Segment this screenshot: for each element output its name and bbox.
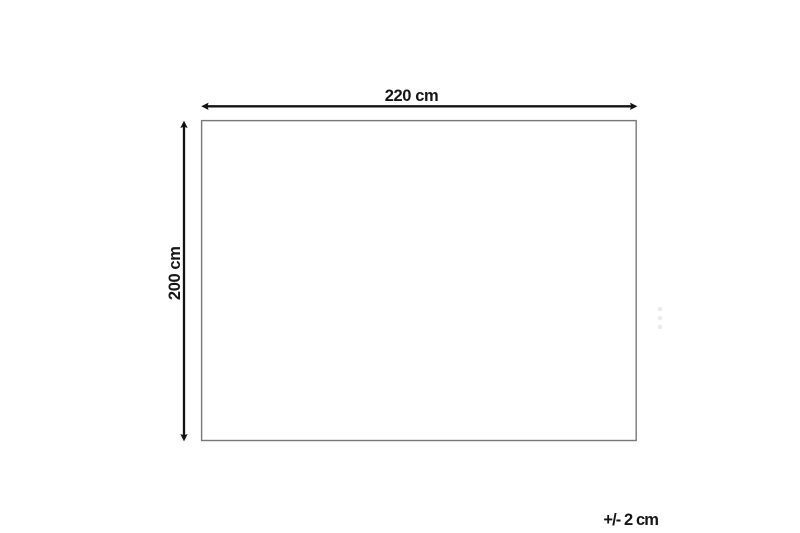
svg-text:220 cm: 220 cm	[385, 87, 439, 105]
svg-text:200 cm: 200 cm	[166, 247, 184, 301]
svg-text:+/- 2 cm: +/- 2 cm	[603, 511, 658, 529]
